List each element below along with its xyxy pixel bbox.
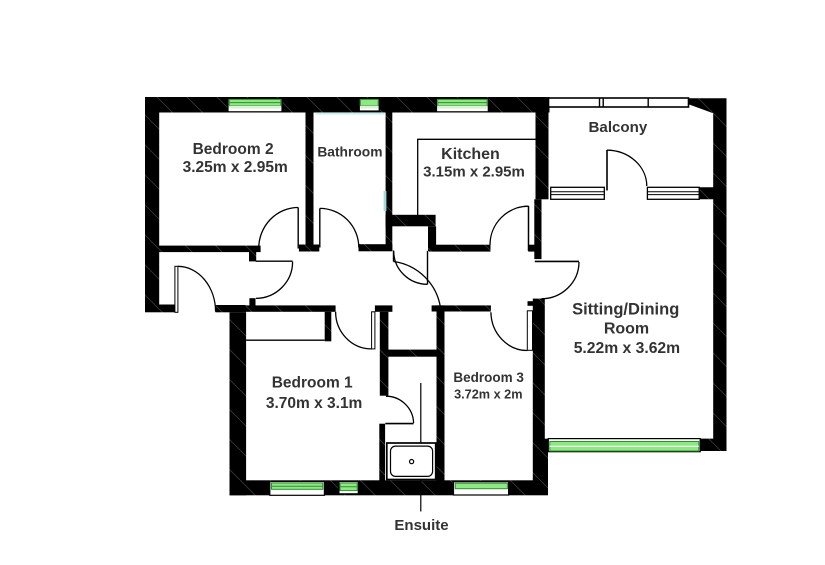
svg-text:5.22m x 3.62m: 5.22m x 3.62m: [574, 340, 680, 357]
svg-text:3.70m x 3.1m: 3.70m x 3.1m: [266, 395, 363, 412]
svg-text:3.15m x 2.95m: 3.15m x 2.95m: [423, 163, 525, 180]
svg-text:Balcony: Balcony: [589, 119, 648, 136]
svg-text:Bedroom 2: Bedroom 2: [193, 141, 274, 158]
svg-text:Bedroom 1: Bedroom 1: [272, 375, 353, 392]
svg-text:Bathroom: Bathroom: [317, 145, 382, 160]
svg-text:Ensuite: Ensuite: [394, 517, 448, 534]
svg-text:3.72m x 2m: 3.72m x 2m: [454, 387, 522, 401]
svg-text:Kitchen: Kitchen: [441, 146, 500, 163]
svg-text:Bedroom 3: Bedroom 3: [453, 370, 524, 385]
svg-text:Room: Room: [604, 320, 649, 337]
svg-text:3.25m x 2.95m: 3.25m x 2.95m: [183, 159, 288, 176]
svg-text:Sitting/Dining: Sitting/Dining: [572, 301, 679, 319]
